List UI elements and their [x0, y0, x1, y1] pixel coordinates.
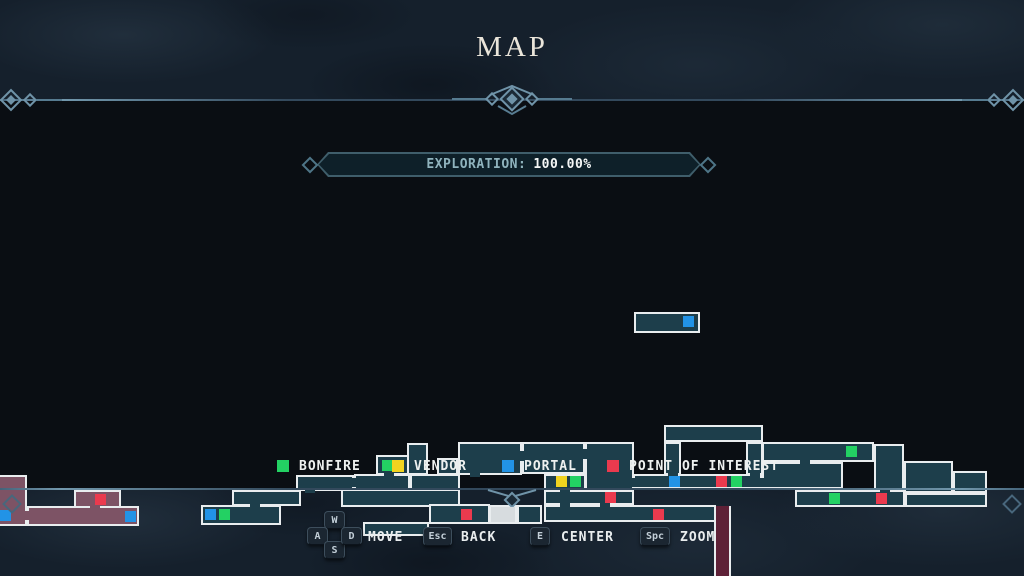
bottom-center-ornament-icon: [486, 489, 538, 507]
marker-poi: [605, 492, 616, 503]
map-room-current: [489, 505, 517, 524]
marker-bonfire: [219, 509, 230, 520]
map-screen: MAP EXPLORATION: 100.00%: [0, 0, 1024, 576]
map-door: [560, 502, 570, 508]
right-divider-ornament-icon: [962, 87, 1024, 113]
marker-bonfire: [846, 446, 857, 457]
map-room: [664, 425, 763, 442]
page-title: MAP: [0, 31, 1024, 64]
key-spc: Spc: [640, 527, 670, 546]
map-legend: BONFIREVENDORPORTALPOINT OF INTEREST: [0, 457, 1024, 477]
left-divider-ornament-icon: [0, 87, 62, 113]
exploration-badge: EXPLORATION: 100.00%: [317, 152, 701, 177]
map-room: [544, 490, 634, 505]
marker-bonfire: [570, 476, 581, 487]
key-w: W: [324, 511, 345, 529]
key-d: D: [341, 527, 362, 545]
marker-poi: [876, 493, 887, 504]
legend-label-vendor: VENDOR: [414, 459, 467, 474]
zoom-label: ZOOM: [680, 530, 715, 545]
legend-label-poi: POINT OF INTEREST: [629, 459, 779, 474]
marker-poi: [461, 509, 472, 520]
map-room: [232, 490, 301, 506]
map-room: [429, 504, 490, 524]
key-esc: Esc: [423, 527, 452, 546]
map-room: [27, 506, 139, 526]
bonfire-swatch-icon: [277, 460, 289, 472]
marker-portal: [669, 476, 680, 487]
center-divider-ornament-icon: [452, 84, 572, 116]
legend-label-portal: PORTAL: [524, 459, 577, 474]
marker-bonfire: [829, 493, 840, 504]
legend-label-bonfire: BONFIRE: [299, 459, 361, 474]
marker-vendor: [556, 476, 567, 487]
bottom-left-corner-ornament-icon: [2, 494, 22, 514]
map-door: [24, 511, 30, 520]
vendor-swatch-icon: [392, 460, 404, 472]
exploration-value: 100.00%: [533, 157, 591, 172]
bottom-right-corner-ornament-icon: [1002, 494, 1022, 514]
poi-swatch-icon: [607, 460, 619, 472]
marker-poi: [716, 476, 727, 487]
marker-portal: [205, 509, 216, 520]
back-label: BACK: [461, 530, 496, 545]
move-label: MOVE: [368, 530, 403, 545]
map-door: [351, 478, 357, 487]
center-label: CENTER: [561, 530, 614, 545]
exploration-label: EXPLORATION:: [426, 157, 526, 172]
map-room: [905, 493, 987, 507]
portal-swatch-icon: [502, 460, 514, 472]
map-door: [630, 478, 636, 487]
marker-bonfire: [731, 476, 742, 487]
map-door: [250, 502, 260, 508]
marker-poi: [653, 509, 664, 520]
map-corridor-shaft: [714, 506, 731, 576]
marker-poi: [95, 494, 106, 505]
key-e: E: [530, 527, 550, 546]
map-room: [517, 505, 542, 524]
marker-portal: [683, 316, 694, 327]
marker-portal: [125, 511, 136, 522]
map-door: [759, 478, 765, 487]
